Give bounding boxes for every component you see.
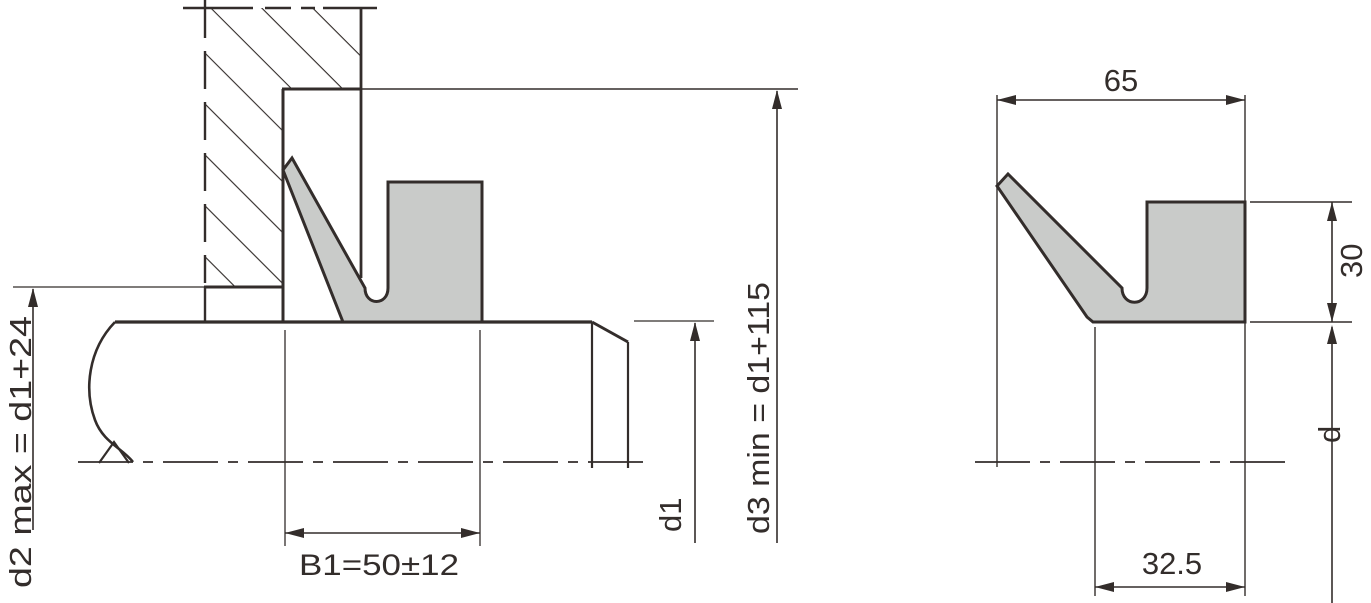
dimension-d3-min: d3 min = d1+115 bbox=[741, 90, 782, 543]
arrow-up-icon bbox=[690, 322, 700, 341]
dimension-b1: B1=50±12 bbox=[285, 330, 480, 582]
profile-extension-lines bbox=[997, 95, 1352, 596]
d1-label: d1 bbox=[653, 498, 688, 532]
dimension-d2-max: d2 max = d1+24 bbox=[3, 287, 205, 588]
shaft-outline bbox=[89, 322, 628, 468]
b1-label: B1=50±12 bbox=[299, 549, 459, 582]
dimension-d1: d1 bbox=[634, 321, 714, 543]
arrow-right-icon bbox=[461, 528, 480, 538]
arrow-right-icon bbox=[1226, 95, 1245, 105]
arrow-left-icon bbox=[1095, 582, 1114, 592]
width-65-label: 65 bbox=[1104, 63, 1138, 98]
dimension-height-30: 30 bbox=[1327, 202, 1369, 322]
dimension-body-width-32-5: 32.5 bbox=[1095, 546, 1245, 592]
profile-view: 65 30 d 32.5 bbox=[975, 63, 1369, 603]
installed-view: d2 max = d1+24 B1=50±12 d1 d3 min = d1+1… bbox=[3, 0, 798, 588]
shaft-chamfer bbox=[592, 322, 628, 342]
shaft-break-curve bbox=[89, 322, 133, 462]
seal-cross-section-installed bbox=[283, 158, 482, 322]
dimension-shaft-d: d bbox=[1312, 325, 1347, 603]
d2-max-label: d2 max = d1+24 bbox=[3, 316, 38, 588]
arrow-up-icon bbox=[1327, 325, 1337, 344]
seal-cross-section-profile bbox=[997, 174, 1245, 322]
arrow-right-icon bbox=[1226, 582, 1245, 592]
dimension-width-65: 65 bbox=[997, 63, 1245, 105]
arrow-up-icon bbox=[1327, 202, 1337, 221]
technical-drawing-canvas: d2 max = d1+24 B1=50±12 d1 d3 min = d1+1… bbox=[0, 0, 1371, 603]
seal-drawing-svg: d2 max = d1+24 B1=50±12 d1 d3 min = d1+1… bbox=[0, 0, 1371, 603]
shaft-d-label: d bbox=[1312, 426, 1347, 443]
arrow-up-icon bbox=[28, 288, 38, 307]
arrow-left-icon bbox=[285, 528, 304, 538]
arrow-left-icon bbox=[997, 95, 1016, 105]
d3-min-label: d3 min = d1+115 bbox=[741, 282, 776, 534]
arrow-down-icon bbox=[1327, 303, 1337, 322]
body-width-label: 32.5 bbox=[1142, 546, 1202, 581]
arrow-up-icon bbox=[772, 90, 782, 109]
height-30-label: 30 bbox=[1334, 244, 1369, 278]
